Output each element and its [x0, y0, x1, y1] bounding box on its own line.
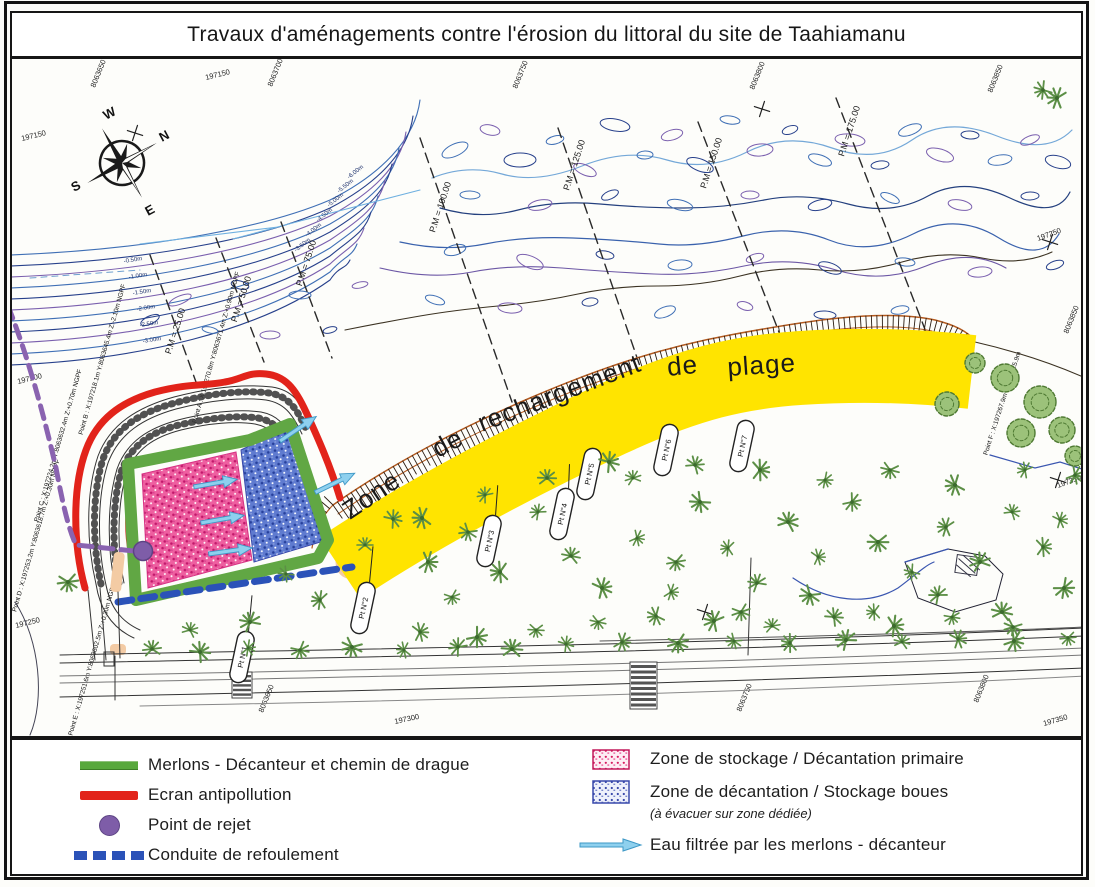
blue-hatch-swatch-icon: [572, 780, 650, 804]
legend-item-decantation: Zone de décantation / Stockage boues: [572, 778, 948, 806]
svg-text:P.M = 175.00: P.M = 175.00: [836, 105, 862, 158]
compass-e: E: [142, 201, 157, 218]
depth-labels: -0.50m -1.00m -1.50m -2.00m -2.50m -3.00…: [123, 164, 365, 345]
svg-text:197350: 197350: [1042, 712, 1069, 728]
legend-item-rejet: Point de rejet: [70, 812, 251, 838]
svg-text:8063650: 8063650: [257, 683, 276, 713]
legend: Merlons - Décanteur et chemin de drague …: [10, 738, 1083, 876]
svg-text:197150: 197150: [204, 67, 230, 82]
svg-text:-4.00m: -4.00m: [305, 222, 323, 238]
scanned-plan-page: P.M = 25.00 P.M = 50.00 P.M = 75.00 P.M …: [0, 0, 1095, 887]
discharge-point: [134, 542, 153, 561]
svg-text:8063750: 8063750: [511, 59, 530, 89]
svg-text:-2.00m: -2.00m: [136, 304, 155, 313]
svg-text:Point D : X:197253.2m Y:806361: Point D : X:197253.2m Y:8063618.7m Z:+0.…: [11, 459, 61, 613]
svg-text:-1.00m: -1.00m: [128, 272, 147, 281]
svg-text:8063850: 8063850: [986, 63, 1005, 93]
svg-text:-1.50m: -1.50m: [132, 288, 151, 297]
compass-s: S: [68, 177, 83, 194]
svg-text:8063800: 8063800: [748, 60, 767, 90]
legend-label: Eau filtrée par les merlons - décanteur: [650, 835, 946, 855]
svg-text:-5.00m: -5.00m: [327, 192, 345, 208]
svg-text:plage: plage: [726, 347, 797, 382]
legend-item-eau-filtree: Eau filtrée par les merlons - décanteur: [572, 832, 946, 858]
svg-text:-3.00m: -3.00m: [142, 336, 161, 345]
svg-text:197150: 197150: [20, 128, 46, 143]
legend-item-merlons: Merlons - Décanteur et chemin de drague: [70, 752, 470, 778]
red-line-swatch-icon: [70, 791, 148, 800]
svg-text:P.M = 100.00: P.M = 100.00: [427, 181, 453, 234]
svg-text:8063850: 8063850: [1062, 304, 1081, 334]
pink-hatch-swatch-icon: [572, 749, 650, 770]
page-title: Travaux d'aménagements contre l'érosion …: [187, 23, 906, 47]
svg-text:197250: 197250: [1036, 226, 1063, 243]
compass-rose: N E S W: [67, 103, 176, 218]
svg-text:8063800: 8063800: [972, 673, 991, 703]
crosswalk-2: [630, 662, 657, 709]
svg-text:-6.00m: -6.00m: [347, 164, 365, 180]
svg-text:Point E : X:197251.6m Y:806360: Point E : X:197251.6m Y:8063602.5m Z:+0.…: [67, 583, 117, 737]
compass-w: W: [100, 103, 119, 122]
svg-text:8063750: 8063750: [735, 682, 754, 712]
legend-note: (à évacuer sur zone dédiée): [650, 806, 812, 821]
legend-item-stockage: Zone de stockage / Décantation primaire: [572, 746, 964, 772]
merlon-line-swatch-icon: [70, 761, 148, 770]
legend-label: Zone de décantation / Stockage boues: [650, 782, 948, 802]
bathymetric-contour-fan: [10, 100, 420, 365]
title-box: Travaux d'aménagements contre l'érosion …: [10, 11, 1083, 58]
legend-label: Conduite de refoulement: [148, 845, 339, 865]
svg-text:8063650: 8063650: [89, 58, 108, 88]
compass-n: N: [156, 127, 171, 145]
legend-label: Ecran antipollution: [148, 785, 292, 805]
svg-text:197300: 197300: [394, 712, 420, 726]
legend-label: Zone de stockage / Décantation primaire: [650, 749, 964, 769]
legend-label: Merlons - Décanteur et chemin de drague: [148, 755, 470, 775]
blue-dash-swatch-icon: [70, 851, 148, 860]
flow-arrow-swatch-icon: [572, 837, 650, 853]
svg-text:P.M = 150.00: P.M = 150.00: [698, 137, 724, 190]
legend-item-ecran: Ecran antipollution: [70, 782, 292, 808]
legend-item-conduite: Conduite de refoulement: [70, 842, 339, 868]
purple-dot-swatch-icon: [70, 815, 148, 836]
svg-text:de: de: [665, 349, 699, 382]
legend-label: Point de rejet: [148, 815, 251, 835]
svg-text:8063700: 8063700: [266, 57, 285, 87]
